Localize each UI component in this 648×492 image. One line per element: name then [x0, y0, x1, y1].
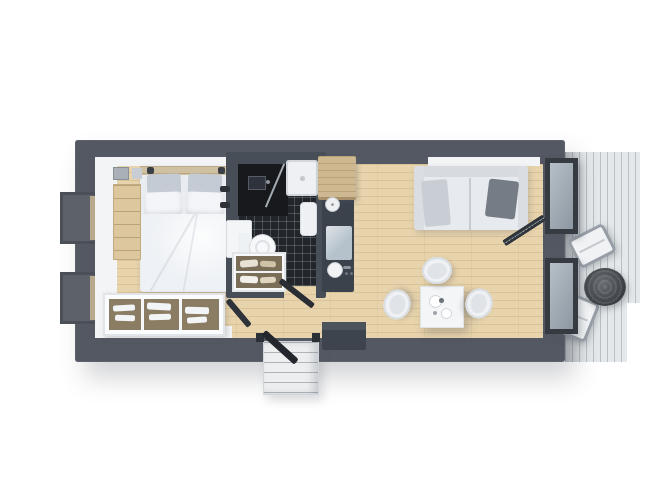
induction-hob	[326, 226, 352, 260]
table-decor	[433, 311, 437, 315]
towel-roll	[240, 259, 258, 267]
wall-art-small	[132, 168, 142, 179]
wardrobe-divider	[179, 299, 182, 330]
folded-clothes	[185, 307, 209, 315]
shower-fitting-lower	[220, 202, 230, 208]
folded-clothes	[149, 314, 171, 321]
double-bed	[140, 166, 228, 292]
prep-sink	[327, 262, 343, 278]
sink-drain	[331, 203, 334, 206]
entry-steps	[263, 341, 319, 395]
towel-shelf	[232, 252, 286, 292]
chair-seat	[426, 261, 449, 281]
duvet	[141, 214, 227, 291]
wall-lamp-right	[218, 167, 225, 174]
table-decor	[439, 298, 444, 303]
wall-art-frame	[113, 167, 129, 180]
faucet-knob	[345, 272, 348, 275]
chair-seat	[387, 293, 408, 316]
kitchen-overhead-cabinet	[318, 156, 356, 200]
kitchen-sink	[325, 197, 340, 212]
plate	[441, 308, 452, 319]
entry-cabinet	[322, 322, 366, 350]
shower-tray	[286, 160, 318, 196]
deck-notch	[627, 303, 640, 362]
folded-clothes	[147, 302, 171, 310]
towel-roll	[260, 277, 276, 284]
wall-radiator	[300, 202, 317, 236]
sofa-back	[414, 166, 528, 177]
bedside-dresser	[113, 184, 141, 260]
open-wardrobe-shelf	[103, 293, 225, 336]
towel-roll	[240, 276, 258, 284]
vanity-faucet	[266, 180, 270, 184]
shower-fitting-upper	[220, 186, 230, 192]
door-jamb-right	[312, 333, 320, 342]
shelf-board	[236, 271, 282, 273]
sofa-blanket	[421, 179, 451, 227]
living-window-sill-top	[428, 157, 540, 166]
wall-lamp-left	[147, 167, 154, 174]
round-ottoman-table	[584, 268, 626, 306]
wardrobe-divider	[141, 299, 144, 330]
shower-drain	[300, 176, 305, 181]
sofa-dark-pillow	[485, 178, 519, 219]
folded-clothes	[187, 316, 207, 323]
floor-plan-render	[0, 0, 648, 492]
pillow-white-right	[186, 191, 225, 216]
lounge-seam	[579, 239, 604, 253]
glass-door-bottom	[545, 258, 578, 334]
folded-clothes	[113, 304, 135, 311]
faucet-knob	[350, 272, 353, 275]
chair-seat	[468, 292, 489, 315]
glass-door-top	[545, 158, 578, 234]
folded-clothes	[115, 315, 135, 322]
kitchen-faucet	[343, 266, 351, 269]
pillow-white-left	[144, 191, 183, 216]
sofa-cushion-seam	[469, 178, 471, 230]
bedroom-window-sill-top	[95, 157, 231, 166]
entry-cabinet-top	[322, 322, 366, 330]
sofa-armrest-right	[518, 166, 528, 230]
vanity-sink	[248, 176, 266, 190]
towel-roll	[260, 261, 276, 268]
sofa	[414, 166, 528, 230]
dining-table	[420, 286, 464, 328]
